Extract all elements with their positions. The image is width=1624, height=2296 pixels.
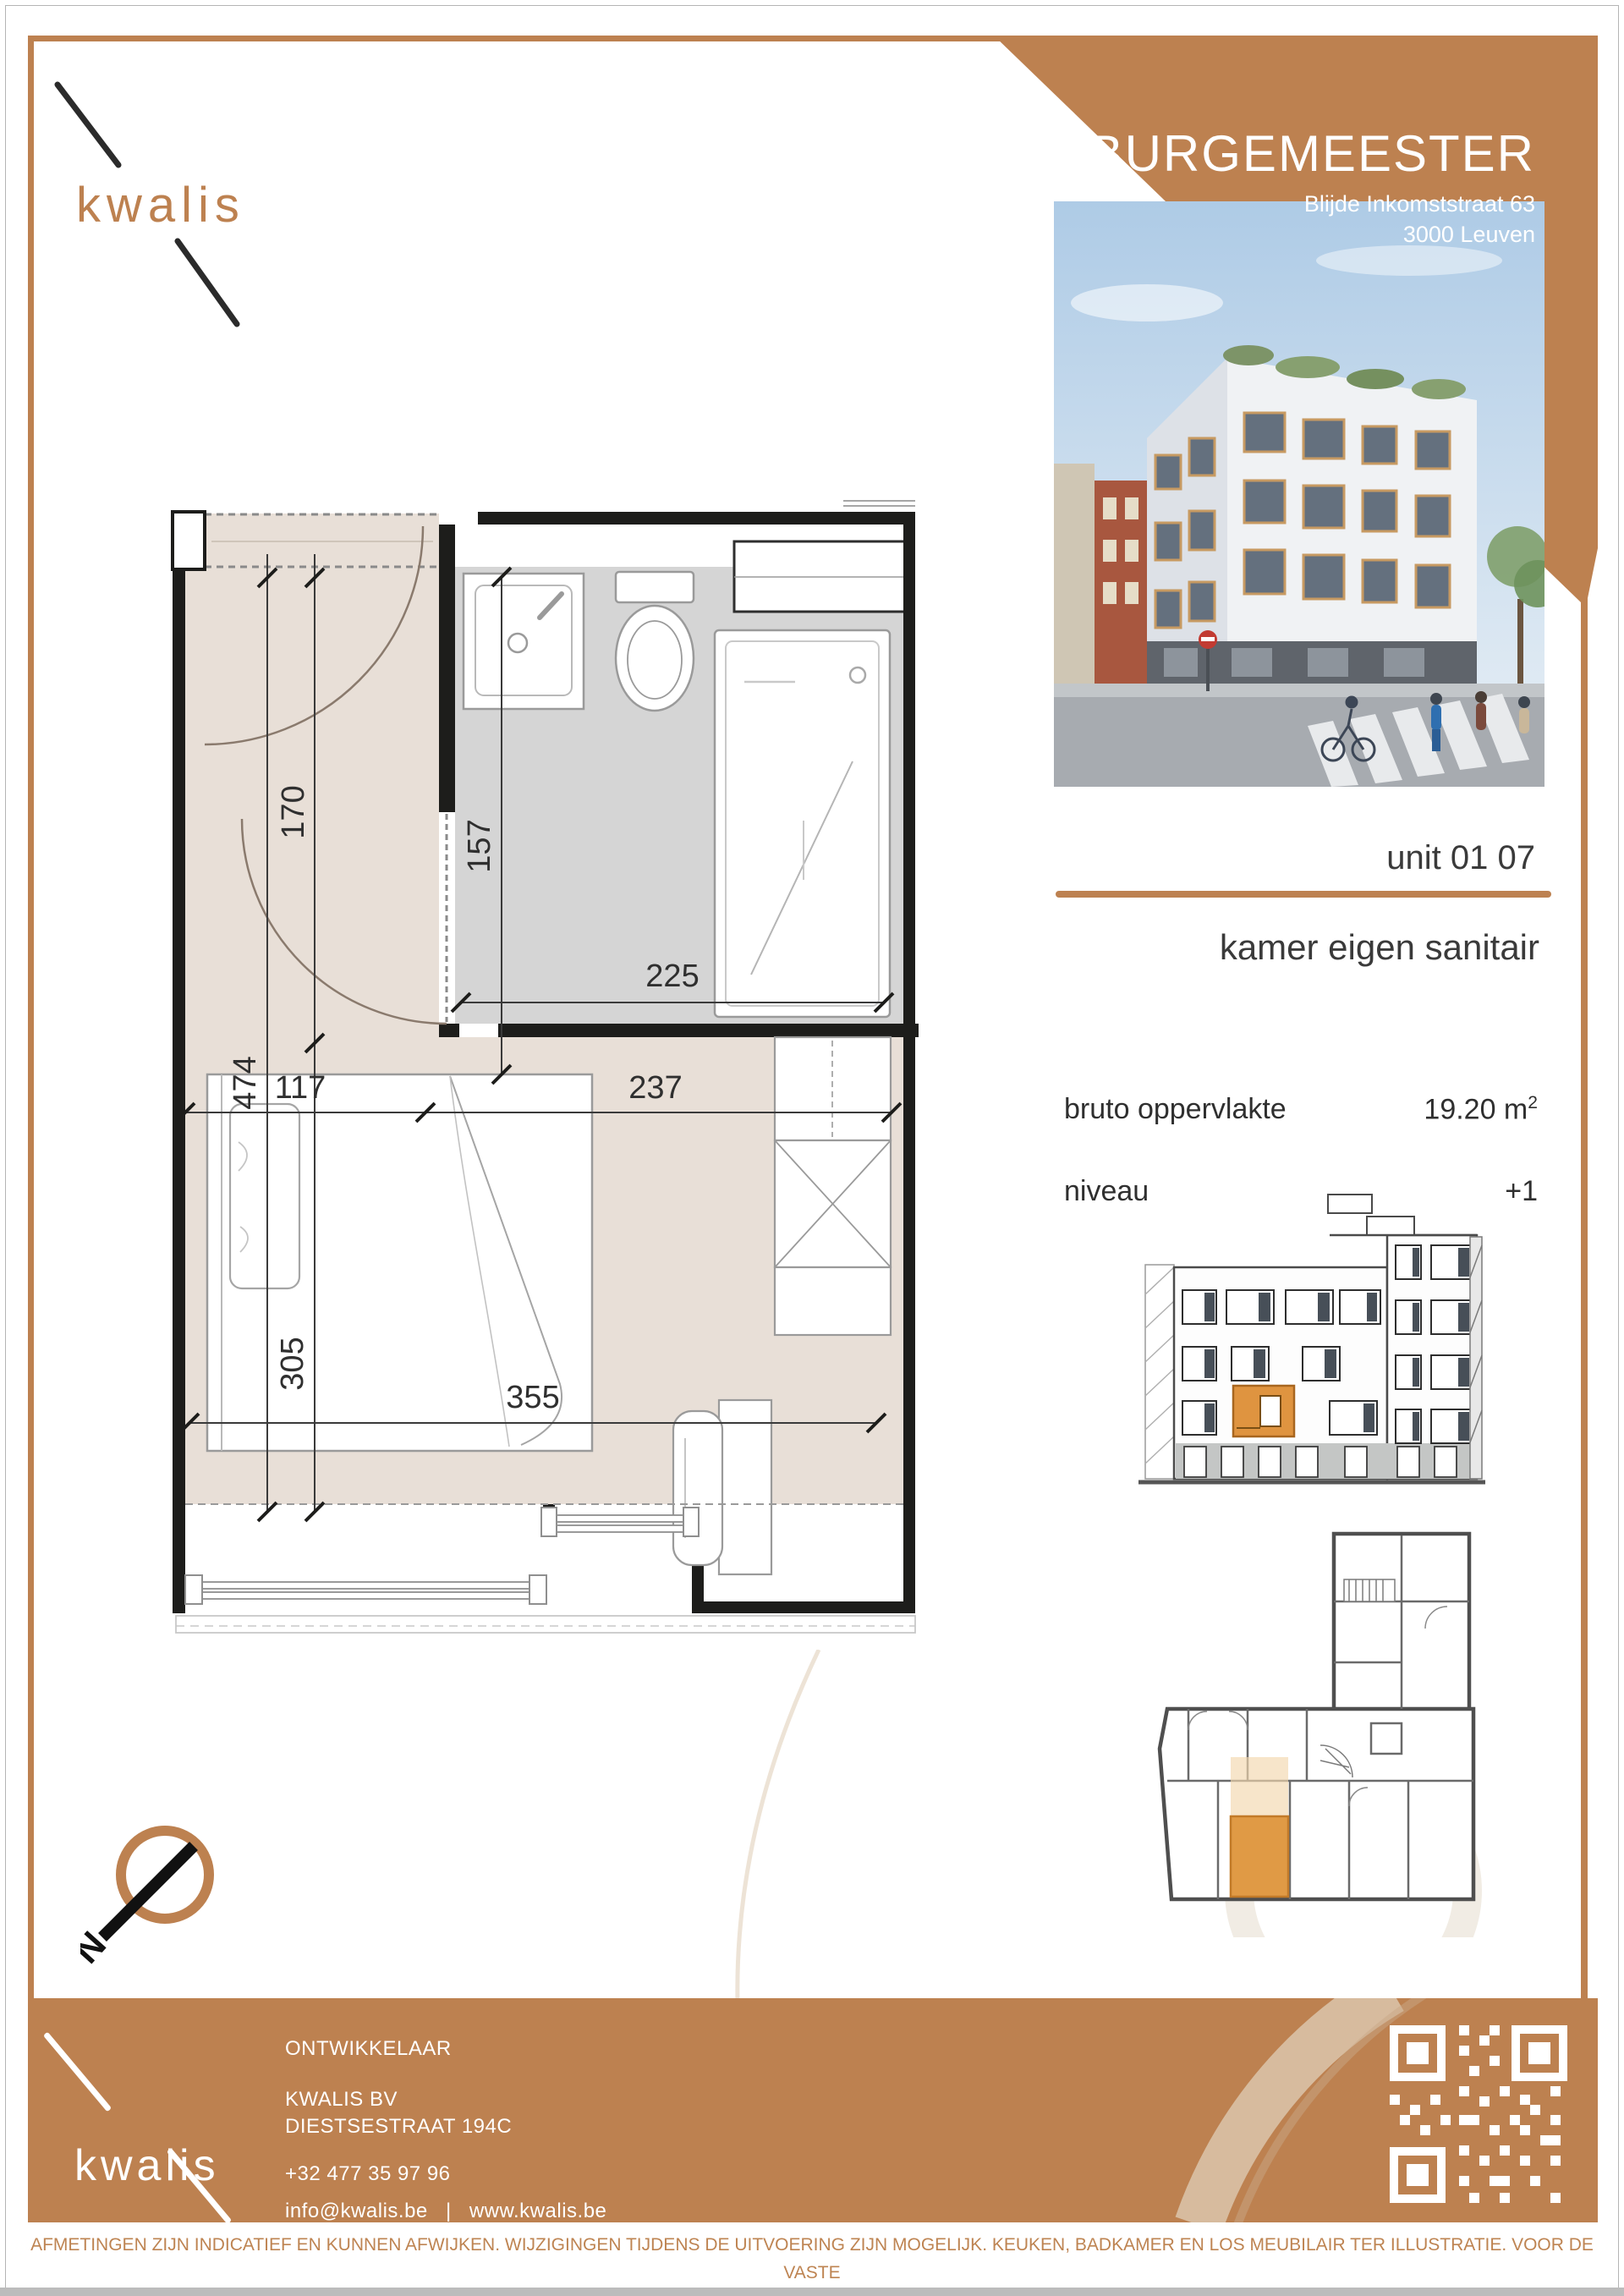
overview-outline <box>1160 1534 1473 1899</box>
bottom-gray-bar <box>0 2288 1624 2296</box>
footer-email: info@kwalis.be <box>285 2200 428 2222</box>
elevation-ground-floor <box>1176 1443 1475 1479</box>
dim-157: 157 <box>462 819 497 872</box>
elevation-hatched-wall <box>1145 1265 1174 1479</box>
disclaimer: AFMETINGEN ZIJN INDICATIEF EN KUNNEN AFW… <box>0 2232 1624 2296</box>
unit-type: kamer eigen sanitair <box>1220 927 1539 968</box>
developer-label: ONTWIKKELAAR <box>285 2037 452 2061</box>
frame-left-line <box>28 36 34 2000</box>
floor-overview-plan <box>1138 1527 1501 1937</box>
floor-plan: 170 157 225 117 237 474 305 355 <box>127 482 939 1641</box>
building-elevation <box>1133 1184 1489 1497</box>
footer-company: KWALIS BV <box>285 2088 398 2112</box>
neighbor-wall-lines <box>843 501 915 506</box>
pillow <box>230 1104 299 1288</box>
photo-neighbor-building <box>1054 464 1095 684</box>
footer-web-row: info@kwalis.be | www.kwalis.be <box>285 2200 606 2222</box>
area-value-text: 19.20 m <box>1424 1093 1528 1125</box>
wall-pier <box>173 512 205 569</box>
project-title-block: BURGEMEESTER Blijde Inkomststraat 63 300… <box>1089 127 1535 250</box>
dim-474: 474 <box>228 1056 263 1109</box>
elevation-unit-highlight <box>1233 1386 1294 1436</box>
desk <box>719 1400 771 1574</box>
dim-117: 117 <box>275 1070 326 1106</box>
dim-355: 355 <box>506 1380 559 1415</box>
overview-unit-wash <box>1231 1757 1288 1816</box>
footer-band: ONTWIKKELAAR KWALIS BV DIESTSESTRAAT 194… <box>28 1998 1598 2222</box>
area-label: bruto oppervlakte <box>1064 1093 1287 1126</box>
project-title: BURGEMEESTER <box>1089 127 1535 180</box>
chair <box>673 1411 722 1565</box>
logo-diagonal-top-icon <box>58 85 118 165</box>
footer-website: www.kwalis.be <box>469 2200 607 2222</box>
footer-swoosh <box>28 1998 1598 2222</box>
dim-225: 225 <box>645 958 699 994</box>
wardrobe <box>775 1037 891 1335</box>
qr-code <box>1381 2017 1576 2211</box>
shaft <box>734 541 907 612</box>
footer-separator: | <box>446 2200 452 2222</box>
level-value: +1 <box>1505 1175 1538 1208</box>
dim-170: 170 <box>276 785 311 838</box>
disclaimer-line1: AFMETINGEN ZIJN INDICATIEF EN KUNNEN AFW… <box>0 2232 1624 2287</box>
project-address-line2: 3000 Leuven <box>1089 219 1535 250</box>
overview-unit-highlight <box>1231 1816 1288 1897</box>
building-photo <box>1054 201 1544 787</box>
elevation-balcony-strip <box>1470 1237 1482 1479</box>
terrace-sill <box>176 1616 915 1633</box>
dim-305: 305 <box>275 1337 310 1390</box>
footer-street: DIESTSESTRAAT 194C <box>285 2115 512 2139</box>
logo-diagonal-bottom-icon <box>178 241 237 324</box>
dim-237: 237 <box>628 1070 682 1106</box>
decorative-arc-faint <box>719 1650 837 2005</box>
shower <box>715 630 890 1017</box>
frame-right-line <box>1581 592 1588 1998</box>
kwalis-logo-header: kwalis <box>51 76 491 338</box>
entry-floor <box>185 569 439 1037</box>
unit-number: unit 01 07 <box>1386 839 1535 877</box>
compass-icon: N <box>80 1810 266 1997</box>
unit-divider-line <box>1056 891 1551 898</box>
header-logo-text: kwalis <box>76 178 245 233</box>
window-left <box>185 1575 546 1604</box>
level-label: niveau <box>1064 1175 1149 1208</box>
sink <box>464 574 584 709</box>
footer-phone: +32 477 35 97 96 <box>285 2162 451 2186</box>
area-sup: 2 <box>1528 1093 1538 1112</box>
desk-chair <box>673 1400 771 1574</box>
area-value: 19.20 m2 <box>1424 1093 1538 1126</box>
toilet <box>616 572 694 711</box>
project-address-line1: Blijde Inkomststraat 63 <box>1089 189 1535 219</box>
plan-sheet-page: kwalis BURGEMEESTER Blijde Inkomststraat… <box>0 0 1624 2296</box>
